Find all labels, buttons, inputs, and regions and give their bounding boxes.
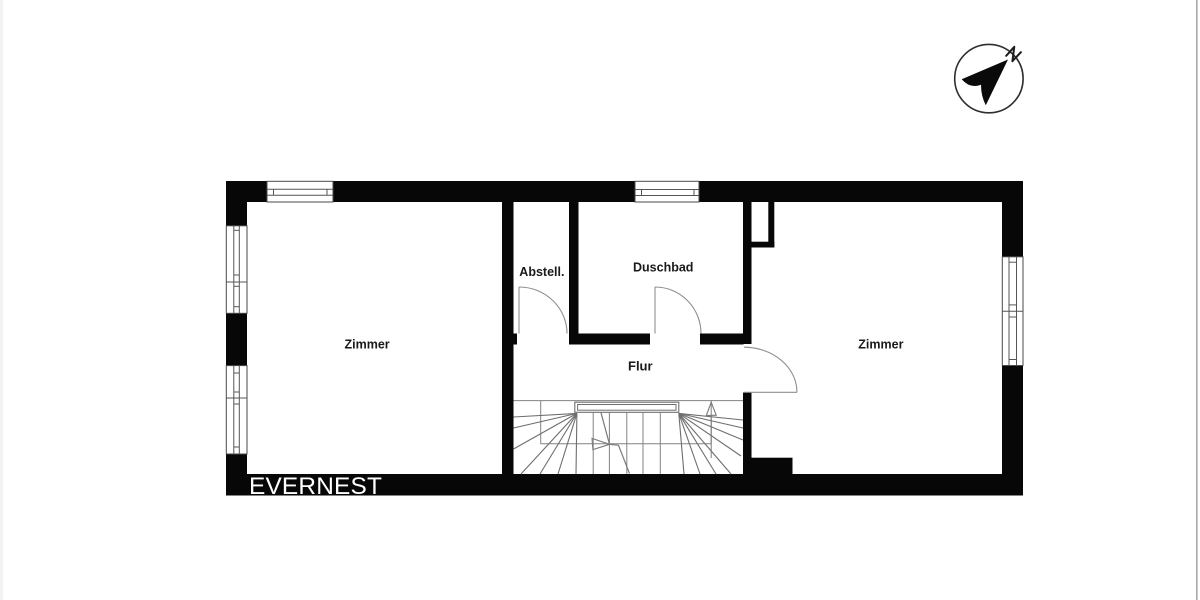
- svg-text:EVERNEST: EVERNEST: [249, 473, 382, 500]
- svg-text:Zimmer: Zimmer: [345, 338, 390, 352]
- svg-text:Abstell.: Abstell.: [519, 265, 564, 279]
- svg-text:Zimmer: Zimmer: [858, 338, 903, 352]
- svg-text:Flur: Flur: [628, 358, 653, 373]
- svg-text:Duschbad: Duschbad: [633, 261, 693, 275]
